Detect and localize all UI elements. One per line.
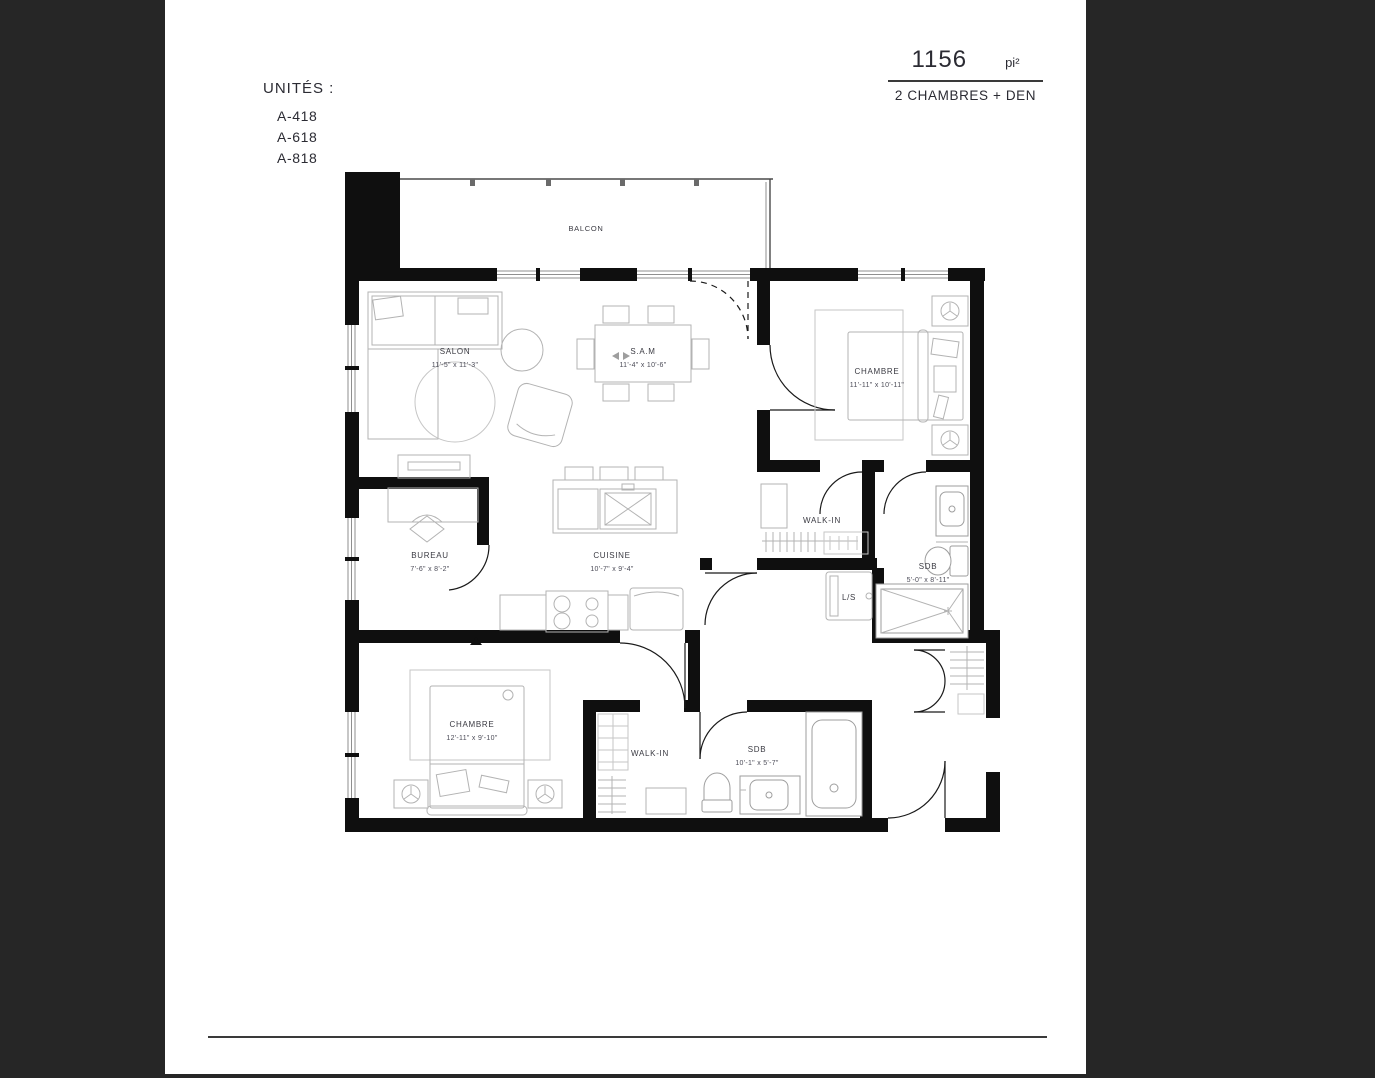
room-label-walkin1: WALK-IN (803, 516, 841, 525)
desk (388, 488, 478, 542)
tv-console (398, 455, 470, 478)
bed-1 (848, 330, 963, 422)
side-table (501, 329, 543, 371)
walkin1-door-arc (820, 472, 862, 514)
footer-rule (208, 1036, 1047, 1038)
bed-2 (427, 686, 527, 815)
room-label-sam: S.A.M (630, 347, 655, 356)
entry-door-arc (888, 761, 945, 818)
window-top-2 (637, 268, 750, 281)
toilet-2 (702, 773, 732, 812)
unit-item: A-418 (277, 106, 334, 127)
room-dims-chambre1: 11'-11" x 10'-11" (850, 382, 905, 389)
chambre2-door-arc (620, 643, 685, 708)
balcony-ticks (470, 179, 699, 186)
floor-plan: BALCON (340, 168, 1010, 838)
armchair (506, 381, 575, 448)
bathroom2-fixtures (702, 712, 862, 816)
room-dims-chambre2: 12'-11" x 9'-10" (446, 735, 497, 742)
units-list: A-418 A-618 A-818 (263, 106, 334, 169)
balcony: BALCON (345, 172, 773, 281)
units-block: UNITÉS : A-418 A-618 A-818 (263, 80, 334, 169)
room-dims-sdb2: 10'-1" x 5'-7" (735, 760, 779, 767)
room-dims-cuisine: 10'-7" x 9'-4" (590, 566, 634, 573)
area-value: 1156 (911, 46, 967, 74)
area-unit: pi² (1005, 55, 1019, 70)
area-block: 1156 pi² 2 CHAMBRES + DEN (888, 46, 1043, 103)
bathtub (806, 712, 862, 816)
nightstand-2b (528, 780, 562, 808)
room-dims-bureau: 7'-6" x 8'-2" (410, 566, 449, 573)
floor-plan-svg: BALCON (340, 168, 1010, 838)
room-label-salon: SALON (440, 347, 471, 356)
sdb1-door-arc (884, 472, 926, 514)
stove (546, 591, 608, 632)
kitchen-counter (500, 588, 683, 632)
island-sink (600, 484, 656, 529)
plan-subtitle: 2 CHAMBRES + DEN (888, 88, 1043, 103)
window-left-bureau (345, 518, 359, 600)
room-dims-sam: 11'-4" x 10'-6" (619, 362, 666, 369)
shower-1 (876, 584, 968, 638)
toilet-1 (925, 546, 968, 576)
chambre1-door-arc (770, 345, 835, 410)
bureau-door-arc (449, 545, 489, 590)
unit-item: A-618 (277, 127, 334, 148)
room-label-sdb2: SDB (748, 745, 767, 754)
left-dark-border (0, 0, 165, 1078)
entry-closet (950, 646, 984, 714)
kitchen-island (553, 467, 677, 533)
area-divider-line (888, 80, 1043, 82)
fridge (630, 588, 683, 630)
area-top: 1156 pi² (888, 46, 1043, 80)
sdb2-door-arc (700, 712, 747, 759)
vanity-2 (740, 776, 800, 814)
room-label-chambre2: CHAMBRE (450, 720, 495, 729)
round-rug (415, 362, 495, 442)
window-top-1 (497, 268, 580, 281)
room-label-balcon: BALCON (568, 224, 603, 233)
room-label-walkin2: WALK-IN (631, 749, 669, 758)
room-label-ls: L/S (842, 593, 856, 602)
room-dims-salon: 11'-5" x 11'-3" (432, 362, 479, 369)
window-left-salon (345, 325, 359, 412)
room-label-sdb1: SDB (919, 562, 938, 571)
nightstand-1a (932, 296, 968, 326)
unit-item: A-818 (277, 148, 334, 169)
right-dark-border (1086, 0, 1375, 1078)
sink-1 (936, 486, 968, 542)
room-label-cuisine: CUISINE (593, 551, 630, 560)
closet-door-arc-bottom (914, 681, 945, 712)
bottom-dark-border (0, 1074, 1375, 1078)
walkin2-closet (598, 714, 686, 814)
units-title: UNITÉS : (263, 80, 334, 97)
nightstand-2a (394, 780, 428, 808)
balcony-door-arc (690, 281, 748, 339)
room-dims-sdb1: 5'-0" x 8'-11" (907, 577, 950, 584)
room-label-bureau: BUREAU (411, 551, 449, 560)
bedroom2-rug (410, 670, 550, 760)
window-top-3 (858, 268, 948, 281)
room-label-chambre1: CHAMBRE (855, 367, 900, 376)
nightstand-1b (932, 425, 968, 455)
closet-door-arc-top (914, 650, 945, 681)
window-left-chambre2 (345, 712, 359, 798)
hall-door-arc (705, 573, 757, 625)
